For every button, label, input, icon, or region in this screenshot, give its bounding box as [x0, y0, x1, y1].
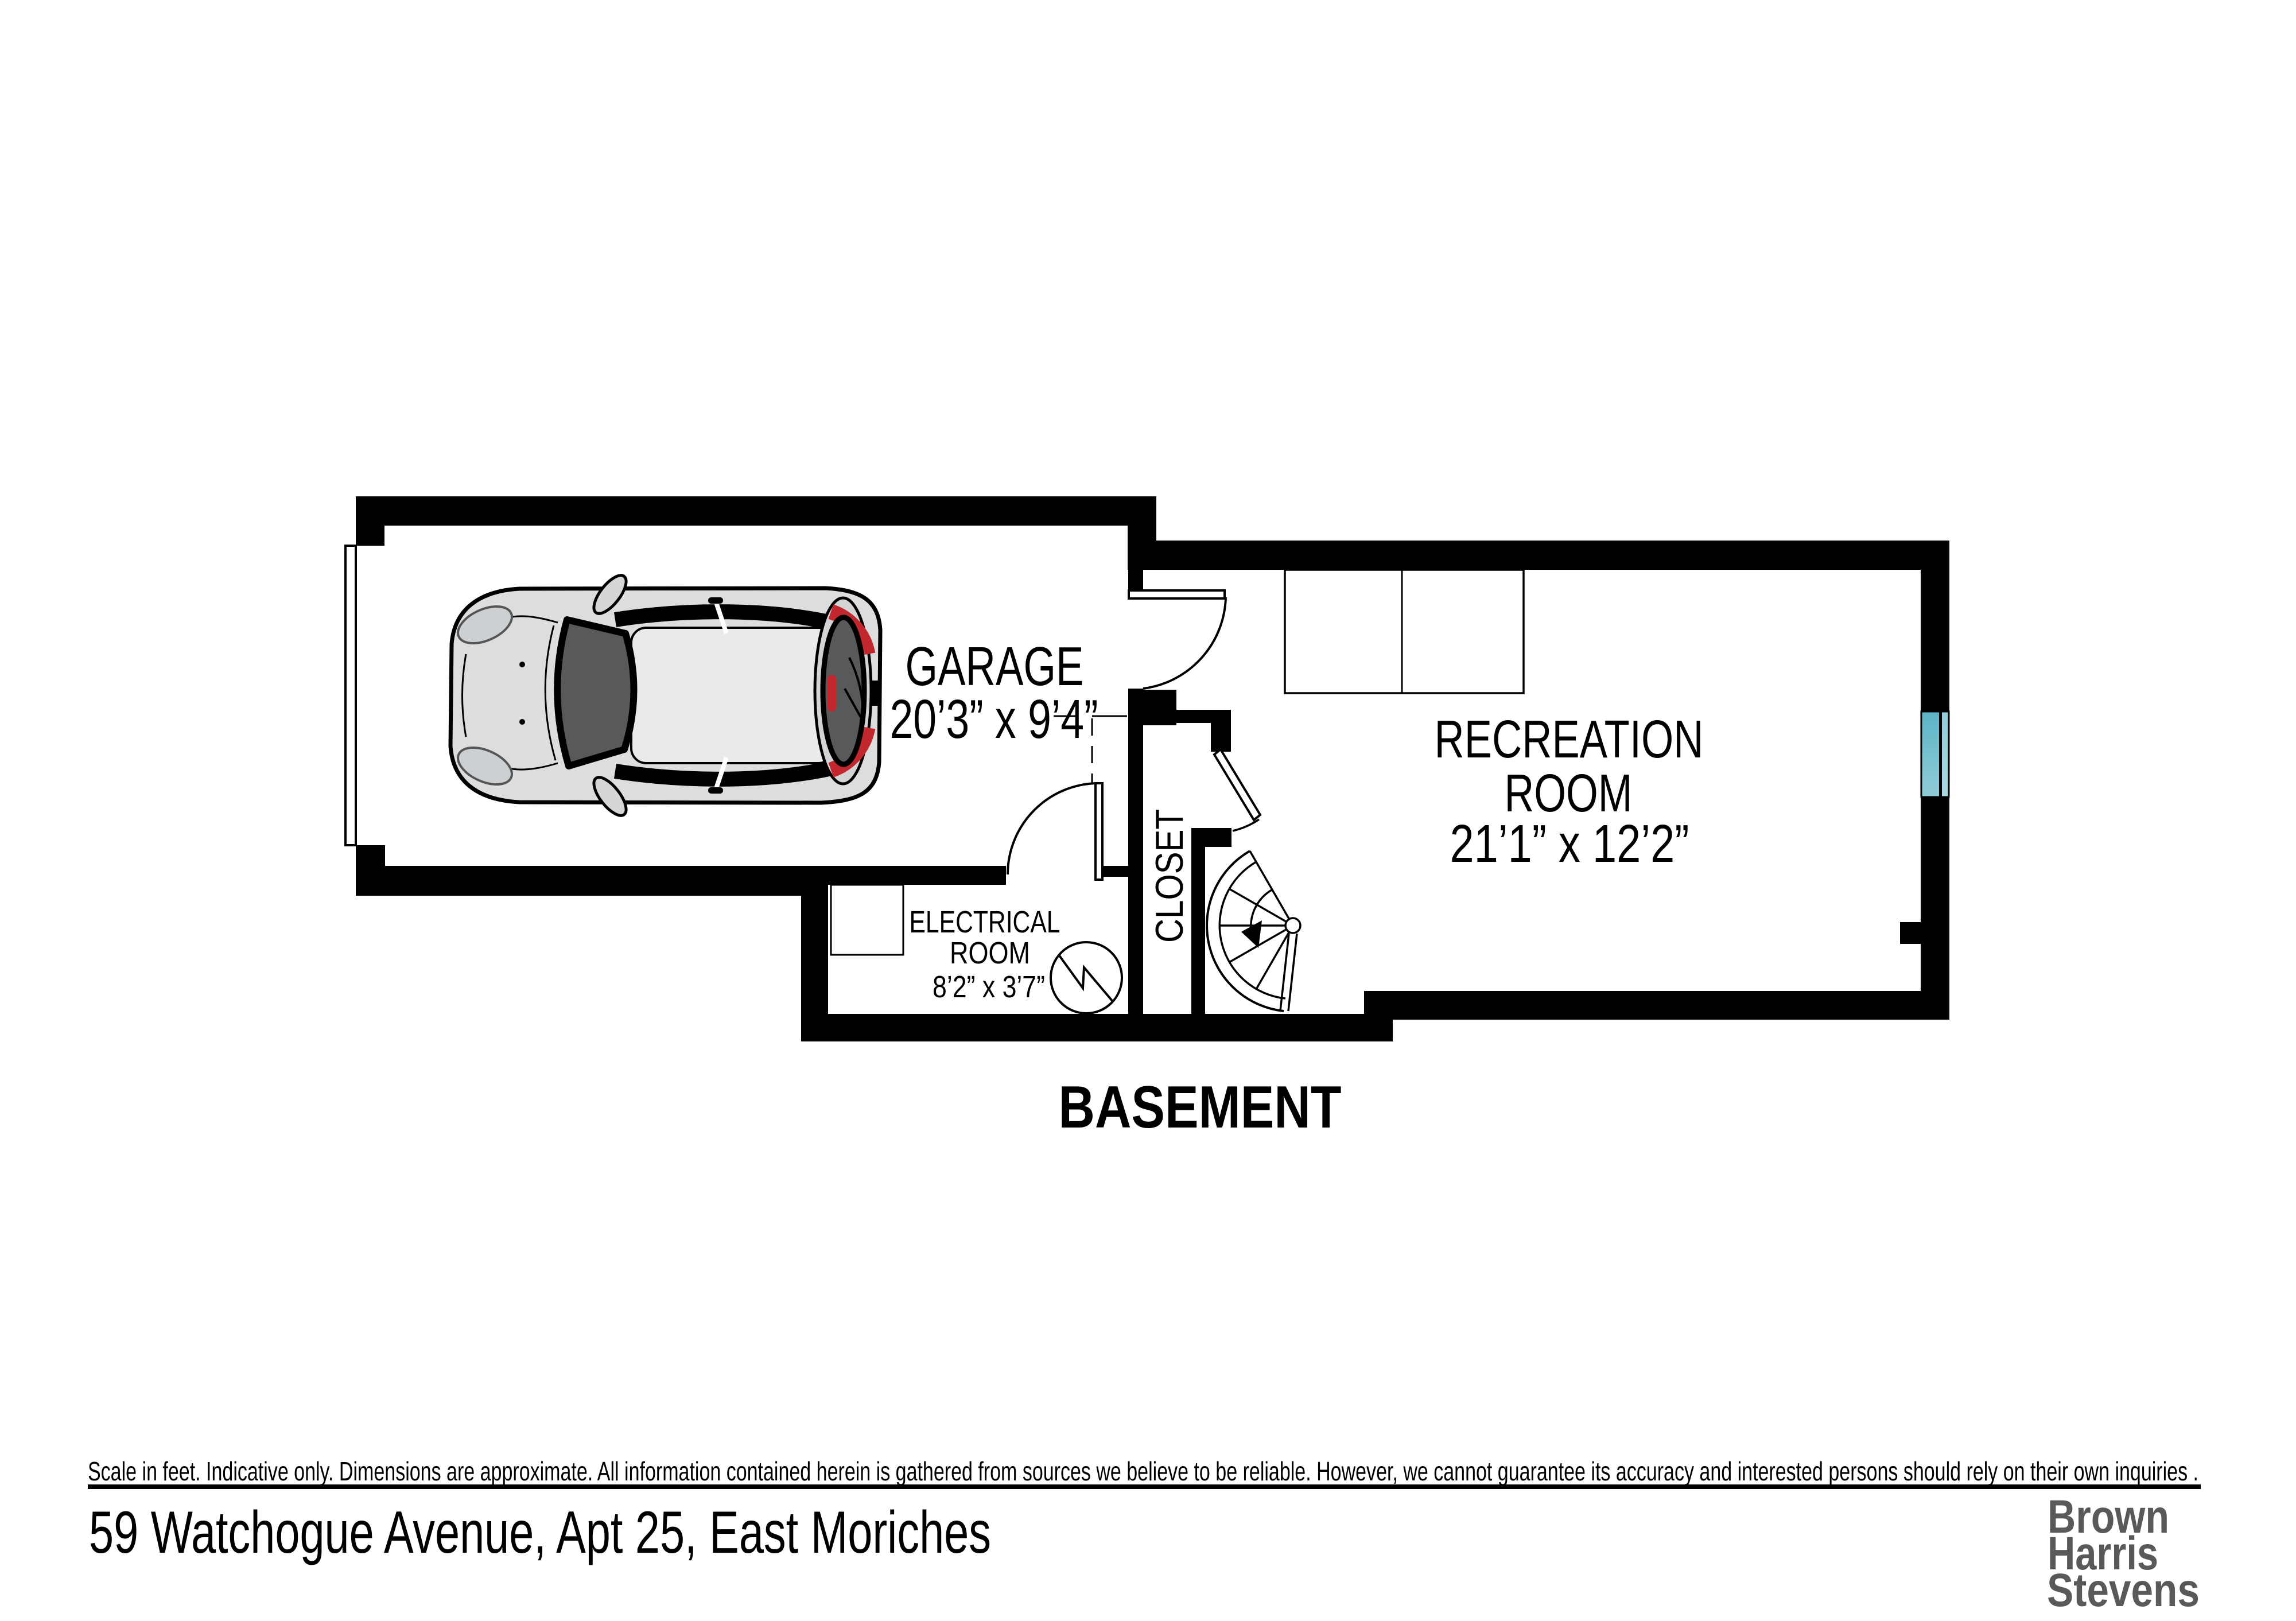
svg-text:59 Watchogue Avenue, Apt 25, E: 59 Watchogue Avenue, Apt 25, East Morich…: [89, 1499, 991, 1566]
svg-text:CLOSET: CLOSET: [1148, 809, 1191, 943]
svg-text:ROOM: ROOM: [950, 936, 1030, 970]
svg-text:RECREATION: RECREATION: [1435, 709, 1704, 769]
svg-text:GARAGE: GARAGE: [906, 636, 1084, 697]
svg-text:Stevens: Stevens: [2047, 1564, 2200, 1616]
svg-text:Scale in feet. Indicative only: Scale in feet. Indicative only. Dimensio…: [88, 1456, 2198, 1486]
svg-text:8’2” x 3’7”: 8’2” x 3’7”: [933, 970, 1045, 1004]
svg-text:21’1” x 12’2”: 21’1” x 12’2”: [1450, 814, 1689, 873]
svg-text:20’3” x 9’4”: 20’3” x 9’4”: [890, 689, 1098, 750]
svg-text:ELECTRICAL: ELECTRICAL: [910, 905, 1060, 939]
svg-text:BASEMENT: BASEMENT: [1059, 1074, 1342, 1141]
